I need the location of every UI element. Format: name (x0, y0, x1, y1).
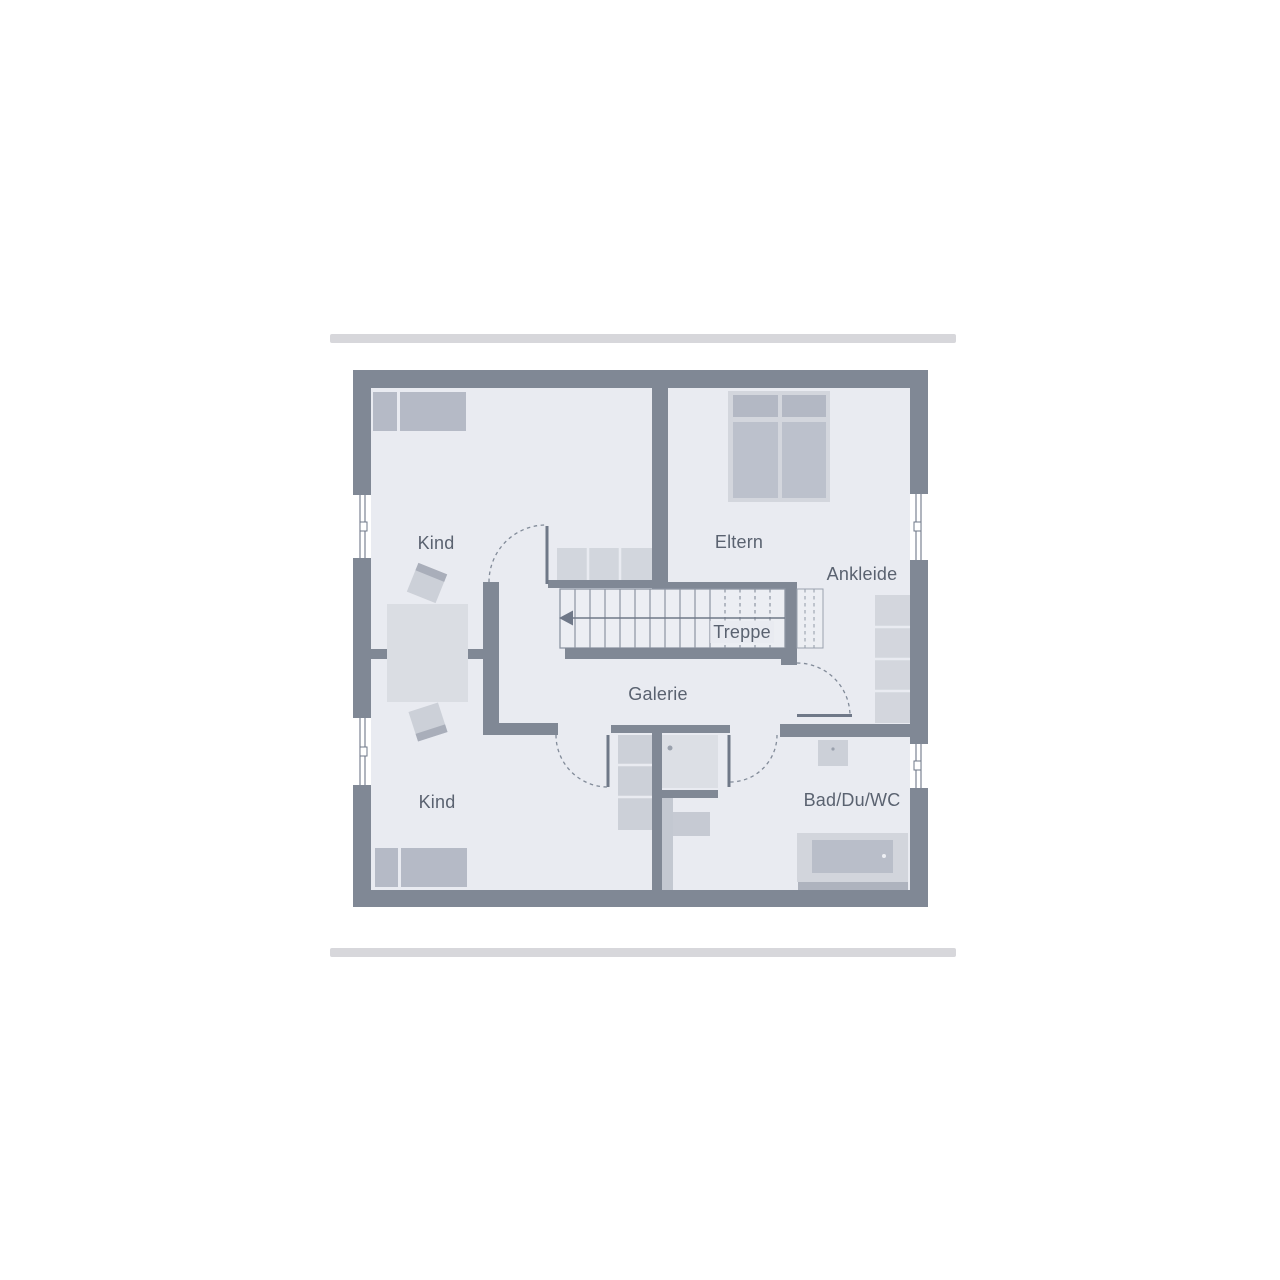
door-leaf-bath (728, 735, 731, 787)
bed-pillow-kind-top (373, 392, 397, 431)
door-leaf-kind-bottom (607, 735, 610, 787)
room-label-text: Eltern (715, 532, 763, 552)
bathtub-drain (882, 854, 886, 858)
door-leaf-kind-top (546, 526, 549, 584)
wall-center-vertical-light (662, 798, 673, 890)
room-label-galerie: Galerie (628, 685, 687, 703)
room-label-text: Kind (418, 533, 455, 553)
bed-mattress-eltern-left (733, 422, 778, 498)
washbasin-center (673, 812, 710, 836)
room-label-bad: Bad/Du/WC (804, 791, 901, 809)
window-left-lower (353, 718, 371, 785)
window-handle (360, 522, 367, 531)
staircase (548, 580, 823, 659)
bed-pillow-eltern-right (782, 395, 826, 417)
room-label-text: Bad/Du/WC (804, 790, 901, 810)
wall-bath-top (780, 724, 910, 737)
bed-kind-bottom (401, 848, 467, 887)
window-handle (360, 747, 367, 756)
window-left-upper (353, 495, 371, 558)
stair-lower-wall (565, 648, 788, 659)
room-label-kind-bottom: Kind (419, 793, 456, 811)
stair-overhead-section (797, 589, 823, 648)
shower-drain (668, 746, 673, 751)
window-handle (914, 761, 921, 770)
cabinet-center (618, 735, 652, 830)
shower (662, 735, 718, 788)
desk-kind (387, 604, 468, 702)
washbasin-tap (831, 747, 834, 750)
room-label-kind-top: Kind (418, 534, 455, 552)
closet-kind-top (557, 548, 652, 583)
washbasin-bath (818, 740, 848, 766)
door-leaf-ankleide (797, 714, 852, 717)
bed-mattress-eltern-right (782, 422, 826, 498)
room-label-eltern: Eltern (715, 533, 763, 551)
wall-galerie-bottom-left (488, 723, 558, 735)
wall-center-vertical (652, 733, 662, 890)
wall-kind-eltern-divider (652, 388, 668, 582)
wall-center-bottom (611, 725, 730, 733)
window-handle (914, 522, 921, 531)
bed-kind-top (400, 392, 466, 431)
bottom-bar (330, 948, 956, 957)
bed-pillow-eltern-left (733, 395, 778, 417)
top-bar (330, 334, 956, 343)
floor-plan-drawing (0, 0, 1280, 1280)
wall-shower-bottom (662, 790, 718, 798)
window-right-lower (910, 744, 928, 788)
bathtub (812, 840, 893, 873)
room-label-text: Treppe (710, 621, 774, 643)
window-right-upper (910, 494, 928, 560)
room-label-text: Kind (419, 792, 456, 812)
room-label-treppe: Treppe (710, 623, 774, 641)
bed-pillow-kind-bottom (375, 848, 398, 887)
bathtub-step (798, 882, 908, 890)
stair-upper-thin-wall (548, 580, 655, 588)
room-label-text: Ankleide (827, 564, 898, 584)
floor-plan-page: Kind Eltern Ankleide Treppe Galerie Kind… (0, 0, 1280, 1280)
room-label-ankleide: Ankleide (827, 565, 898, 583)
room-label-text: Galerie (628, 684, 687, 704)
